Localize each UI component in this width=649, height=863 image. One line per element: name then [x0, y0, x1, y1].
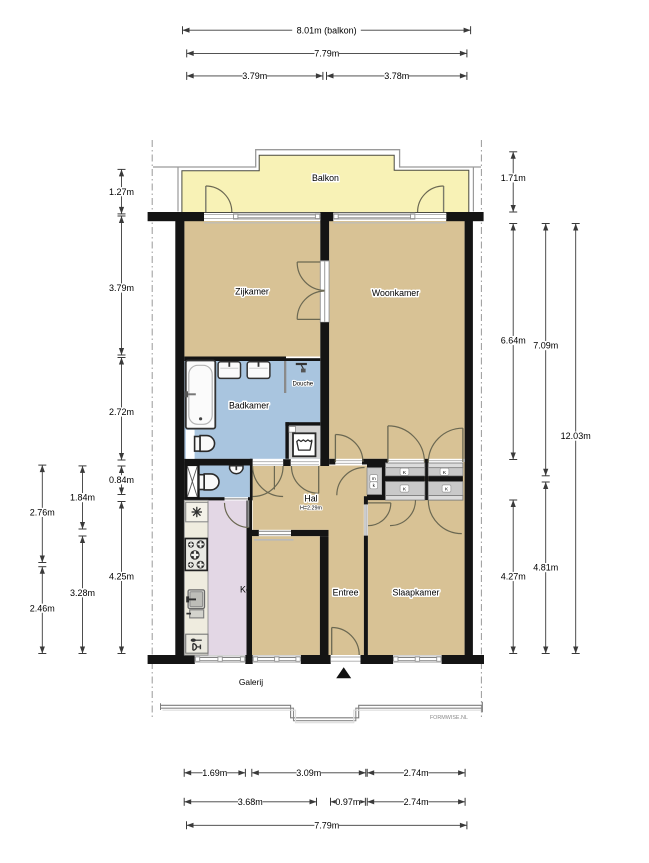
svg-text:2.76m: 2.76m [30, 508, 55, 518]
svg-text:H=2.29m: H=2.29m [300, 505, 323, 511]
svg-text:1.71m: 1.71m [501, 173, 526, 183]
svg-text:2.74m: 2.74m [404, 797, 429, 807]
svg-text:12.03m: 12.03m [561, 431, 591, 441]
svg-text:3.79m: 3.79m [109, 283, 134, 293]
svg-text:m: m [372, 476, 376, 481]
svg-text:0.97m: 0.97m [335, 797, 360, 807]
svg-text:7.79m: 7.79m [314, 820, 339, 830]
svg-text:Galerij: Galerij [239, 677, 263, 687]
svg-text:FORMWISE.NL: FORMWISE.NL [430, 715, 468, 721]
svg-text:2.46m: 2.46m [30, 603, 55, 613]
svg-text:Douche: Douche [292, 382, 313, 388]
svg-text:4.27m: 4.27m [501, 572, 526, 582]
svg-text:1.27m: 1.27m [109, 187, 134, 197]
svg-text:4.25m: 4.25m [109, 572, 134, 582]
svg-text:2.74m: 2.74m [404, 768, 429, 778]
svg-text:4.81m: 4.81m [533, 563, 558, 573]
svg-text:Balkon: Balkon [312, 173, 339, 183]
svg-text:3.09m: 3.09m [296, 768, 321, 778]
svg-text:8.01m (balkon): 8.01m (balkon) [297, 25, 357, 35]
svg-text:Entree: Entree [333, 588, 359, 598]
svg-text:3.79m: 3.79m [242, 71, 267, 81]
svg-text:7.79m: 7.79m [314, 49, 339, 59]
svg-text:3.78m: 3.78m [384, 71, 409, 81]
svg-text:Hal: Hal [304, 493, 317, 503]
svg-text:Zijkamer: Zijkamer [235, 287, 269, 297]
svg-text:3.28m: 3.28m [70, 588, 95, 598]
svg-text:Woonkamer: Woonkamer [372, 288, 419, 298]
svg-text:Slaapkamer: Slaapkamer [393, 588, 440, 598]
svg-text:1.84m: 1.84m [70, 493, 95, 503]
svg-text:2.72m: 2.72m [109, 407, 134, 417]
svg-text:Badkamer: Badkamer [229, 401, 269, 411]
svg-text:7.09m: 7.09m [533, 341, 558, 351]
svg-text:1.69m: 1.69m [202, 768, 227, 778]
svg-text:6.64m: 6.64m [501, 336, 526, 346]
svg-text:3.68m: 3.68m [238, 797, 263, 807]
svg-text:0.84m: 0.84m [109, 475, 134, 485]
